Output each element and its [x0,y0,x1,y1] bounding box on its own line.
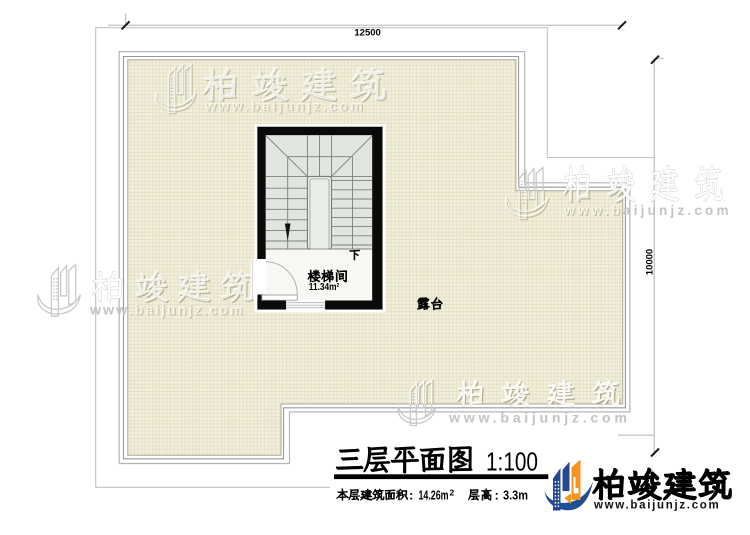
svg-text:11.34m²: 11.34m² [309,282,340,293]
svg-text:1:100: 1:100 [486,447,538,477]
svg-text:2: 2 [450,488,455,498]
svg-text:www.baijunjz.com: www.baijunjz.com [204,99,365,115]
svg-text::: : [495,488,499,503]
svg-text:www.baijunjz.com: www.baijunjz.com [593,500,720,512]
svg-text:3.3m: 3.3m [503,489,528,503]
svg-text:10000: 10000 [645,249,656,275]
svg-text:14.26m: 14.26m [419,489,449,503]
svg-text::: : [409,488,413,503]
svg-text:www.baijunjz.com: www.baijunjz.com [448,411,631,427]
svg-text:12500: 12500 [354,28,380,39]
